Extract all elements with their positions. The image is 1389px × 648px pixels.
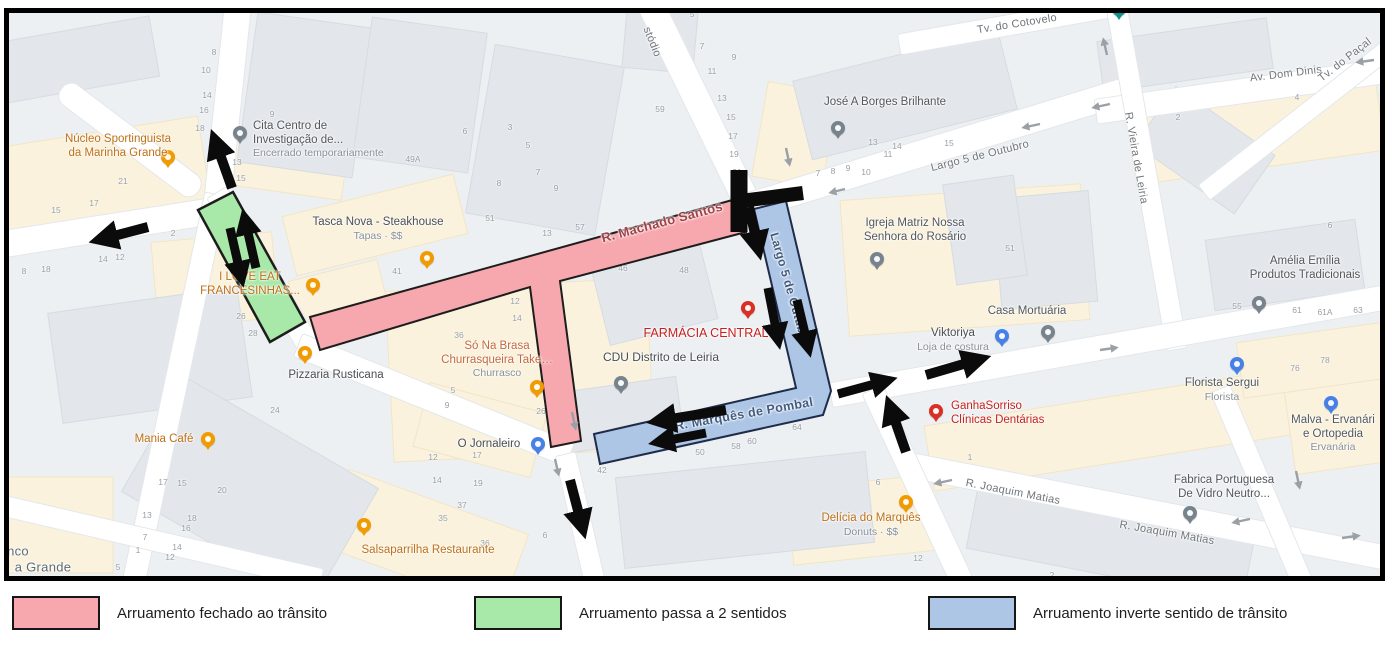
- house-number: 8: [831, 166, 836, 176]
- house-number: 8: [497, 178, 502, 188]
- house-number: 7: [143, 532, 148, 542]
- house-number: 76: [1290, 363, 1299, 373]
- house-number: 6: [876, 477, 881, 487]
- house-number: 9: [445, 400, 450, 410]
- house-number: 2: [1050, 570, 1055, 580]
- closed-road-swatch: [12, 596, 100, 630]
- street-label: R. Machado Santos: [600, 199, 725, 246]
- house-number: 37: [457, 500, 466, 510]
- street-label: nco: [7, 544, 29, 559]
- legend: Arruamento fechado ao trânsito Arruament…: [0, 586, 1389, 648]
- house-number: 11: [708, 66, 717, 76]
- house-number: 19: [473, 478, 482, 488]
- house-number: 36: [454, 330, 463, 340]
- pharmacy-pin-icon[interactable]: [741, 301, 755, 315]
- house-number: 13: [868, 137, 877, 147]
- house-number: 15: [51, 205, 60, 215]
- map-frame: 8101416189131521171549A59579111315171921…: [4, 8, 1385, 581]
- house-number: 14: [172, 542, 181, 552]
- inverted-road-swatch: [928, 596, 1016, 630]
- poi-label-ganhasorriso[interactable]: GanhaSorrisoClínicas Dentárias: [951, 400, 1044, 427]
- poi-label-salsaparrilha[interactable]: Salsaparrilha Restaurante: [362, 544, 495, 558]
- house-number: 5: [526, 140, 531, 150]
- house-number: 7: [816, 168, 821, 178]
- legend-label: Arruamento passa a 2 sentidos: [579, 605, 787, 622]
- place-pin-icon[interactable]: [614, 376, 628, 390]
- restaurant-pin-icon[interactable]: [420, 251, 434, 265]
- house-number: 4: [1295, 92, 1300, 102]
- house-number: 17: [89, 198, 98, 208]
- house-number: 11: [884, 149, 893, 159]
- poi-label-delicia-marques[interactable]: Delícia do MarquêsDonuts · $$: [821, 512, 920, 538]
- house-number: 1: [136, 545, 141, 555]
- poi-label-mania-cafe[interactable]: Mania Café: [135, 433, 194, 447]
- house-number: 1: [968, 452, 973, 462]
- house-number: 16: [181, 523, 190, 533]
- house-number: 15: [177, 478, 186, 488]
- house-number: 18: [195, 123, 204, 133]
- restaurant-pin-icon[interactable]: [306, 278, 320, 292]
- house-number: 50: [695, 447, 704, 457]
- legend-item-two-way: Arruamento passa a 2 sentidos: [474, 596, 787, 630]
- poi-label-cdu-leiria[interactable]: CDU Distrito de Leiria: [603, 350, 719, 364]
- restaurant-pin-icon[interactable]: [899, 495, 913, 509]
- house-number: 12: [165, 552, 174, 562]
- house-number: 16: [199, 105, 208, 115]
- church-pin-icon[interactable]: [870, 252, 884, 266]
- house-number: 15: [544, 297, 553, 307]
- house-number: 2: [171, 228, 176, 238]
- house-number: 13: [232, 157, 241, 167]
- map-canvas[interactable]: 8101416189131521171549A59579111315171921…: [4, 8, 1385, 581]
- house-number: 6: [4, 263, 8, 273]
- house-number: 57: [575, 222, 584, 232]
- house-number: 26: [536, 406, 545, 416]
- place-pin-icon[interactable]: [831, 121, 845, 135]
- house-number: 21: [732, 167, 741, 177]
- restaurant-pin-icon[interactable]: [530, 380, 544, 394]
- house-number: 9: [270, 109, 275, 119]
- house-number: 2: [1176, 112, 1181, 122]
- house-number: 14: [892, 141, 901, 151]
- house-number: 35: [438, 513, 447, 523]
- poi-label-cita-centro[interactable]: Cita Centro deInvestigação de...Encerrad…: [253, 120, 384, 160]
- poi-label-jose-borges[interactable]: José A Borges Brilhante: [824, 96, 946, 110]
- poi-label-igreja-matriz[interactable]: Igreja Matriz NossaSenhora do Rosário: [864, 217, 966, 244]
- house-number: 13: [717, 93, 726, 103]
- house-number: 9: [732, 52, 737, 62]
- house-number: 64: [792, 422, 801, 432]
- poi-label-tasca-nova[interactable]: Tasca Nova - SteakhouseTapas · $$: [312, 216, 443, 242]
- shopping-pin-icon[interactable]: [995, 329, 1009, 343]
- legend-label: Arruamento inverte sentido de trânsito: [1033, 605, 1287, 622]
- house-number: 12: [510, 296, 519, 306]
- house-number: 55: [1232, 301, 1241, 311]
- poi-label-i-love-eat[interactable]: I LOVE EATFRANCESINHAS...: [200, 271, 300, 298]
- dentist-pin-icon[interactable]: [929, 404, 943, 418]
- house-number: 61: [1292, 305, 1301, 315]
- house-number: 42: [597, 465, 606, 475]
- house-number: 6: [543, 530, 548, 540]
- place-pin-icon[interactable]: [1252, 296, 1266, 310]
- house-number: 5: [690, 9, 695, 19]
- legend-label: Arruamento fechado ao trânsito: [117, 605, 327, 622]
- poi-label-florista-sergui[interactable]: Florista SerguiFlorista: [1185, 377, 1259, 403]
- house-number: 3: [508, 122, 513, 132]
- house-number: 13: [142, 510, 151, 520]
- arrow-down-icon: [768, 288, 777, 334]
- building: [465, 44, 625, 236]
- house-number: 17: [728, 131, 737, 141]
- house-number: 61A: [1317, 307, 1332, 317]
- restaurant-pin-icon[interactable]: [357, 518, 371, 532]
- shopping-pin-icon[interactable]: [1324, 396, 1338, 410]
- house-number: 28: [248, 328, 257, 338]
- house-number: 21: [118, 176, 127, 186]
- house-number: 12: [428, 452, 437, 462]
- poi-label-viktoriya[interactable]: ViktoriyaLoja de costura: [917, 327, 989, 353]
- house-number: 18: [187, 513, 196, 523]
- house-number: 12: [115, 252, 124, 262]
- house-number: 19: [729, 149, 738, 159]
- house-number: 8: [22, 266, 27, 276]
- house-number: 20: [217, 485, 226, 495]
- house-number: 78: [1320, 355, 1329, 365]
- house-number: 15: [944, 138, 953, 148]
- house-number: 17: [554, 316, 563, 326]
- poi-label-so-na-brasa[interactable]: Só Na BrasaChurrasqueira Take…Churrasco: [441, 340, 553, 380]
- house-number: 41: [392, 266, 401, 276]
- house-number: 9: [554, 183, 559, 193]
- street-label: a Grande: [15, 560, 72, 575]
- house-number: 26: [236, 311, 245, 321]
- house-number: 18: [41, 264, 50, 274]
- house-number: 14: [432, 475, 441, 485]
- house-number: 10: [861, 167, 870, 177]
- house-number: 58: [731, 441, 740, 451]
- house-number: 6: [1328, 220, 1333, 230]
- house-number: 49A: [405, 154, 420, 164]
- house-number: 10: [201, 65, 210, 75]
- legend-item-closed: Arruamento fechado ao trânsito: [12, 596, 327, 630]
- place-pin-icon[interactable]: [1183, 506, 1197, 520]
- poi-label-pizzaria-rusticana[interactable]: Pizzaria Rusticana: [288, 369, 383, 383]
- place-pin-icon[interactable]: [233, 126, 247, 140]
- shopping-pin-icon[interactable]: [531, 437, 545, 451]
- house-number: 15: [236, 173, 245, 183]
- legend-item-inverted: Arruamento inverte sentido de trânsito: [928, 596, 1287, 630]
- house-number: 40: [494, 285, 503, 295]
- traffic-plan-page: { "legend": { "items": [ {"label": "Arru…: [0, 0, 1389, 648]
- house-number: 48: [679, 265, 688, 275]
- restaurant-pin-icon[interactable]: [298, 346, 312, 360]
- house-number: 17: [158, 477, 167, 487]
- poi-label-farmacia-central[interactable]: FARMÁCIA CENTRAL: [643, 326, 768, 341]
- poi-label-fabrica-vidro[interactable]: Fabrica PortuguesaDe Vidro Neutro...: [1174, 474, 1274, 501]
- poi-label-malva-ervanaria[interactable]: Malva - Ervanárie OrtopediaErvanária: [1291, 414, 1375, 454]
- florist-pin-icon[interactable]: [1230, 357, 1244, 371]
- street-label: Largo 5 de Outubro: [767, 231, 813, 347]
- house-number: 8: [212, 47, 217, 57]
- road-tv-cotovelo: [897, 8, 1123, 55]
- house-number: 60: [747, 436, 756, 446]
- house-number: 51: [485, 213, 494, 223]
- house-number: 46: [618, 263, 627, 273]
- house-number: 7: [536, 167, 541, 177]
- house-number: 15: [726, 112, 735, 122]
- two-way-road-swatch: [474, 596, 562, 630]
- house-number: 5: [451, 385, 456, 395]
- house-number: 13: [542, 228, 551, 238]
- house-number: 7: [700, 41, 705, 51]
- house-number: 51: [1005, 243, 1014, 253]
- place-pin-icon[interactable]: [1041, 325, 1055, 339]
- house-number: 63: [1353, 305, 1362, 315]
- house-number: 6: [463, 126, 468, 136]
- house-number: 9: [846, 163, 851, 173]
- house-number: 12: [913, 553, 922, 563]
- poi-label-casa-mortuaria[interactable]: Casa Mortuária: [988, 305, 1067, 319]
- poi-label-amelia-emilia[interactable]: Amélia EmíliaProdutos Tradicionais: [1250, 255, 1361, 282]
- poi-label-o-jornaleiro[interactable]: O Jornaleiro: [458, 438, 521, 452]
- house-number: 38: [473, 289, 482, 299]
- house-number: 24: [270, 405, 279, 415]
- house-number: 14: [512, 313, 521, 323]
- house-number: 5: [116, 562, 121, 572]
- house-number: 14: [98, 254, 107, 264]
- cafe-pin-icon[interactable]: [201, 432, 215, 446]
- poi-label-nucleo-sportinguista[interactable]: Núcleo Sportinguistada Marinha Grande: [65, 133, 171, 160]
- house-number: 59: [655, 104, 664, 114]
- house-number: 14: [202, 90, 211, 100]
